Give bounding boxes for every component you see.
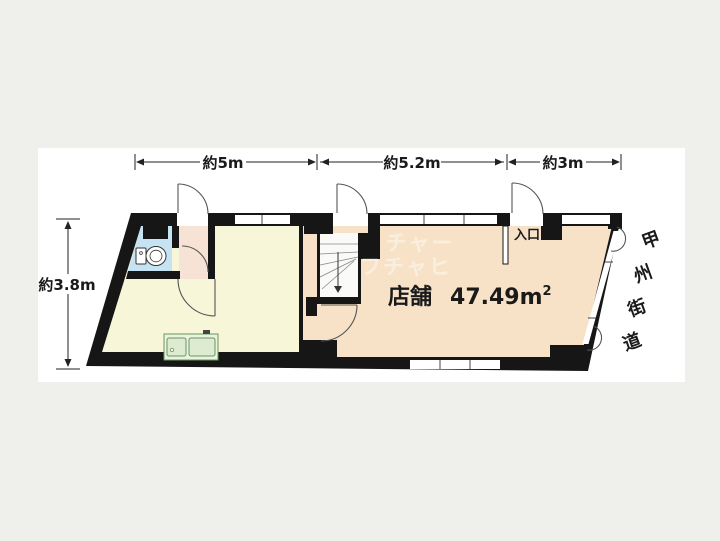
top-right-corner-block [608, 213, 622, 229]
bottom-window [410, 360, 500, 369]
shop-name: 店舗 [388, 284, 432, 310]
dim-label-5m: 約5m [202, 154, 243, 172]
pipe-shaft [143, 226, 168, 239]
stairs-bottom-left-block [306, 297, 317, 316]
top-window-2 [380, 215, 497, 224]
shop-label: 店舗47.49m2 [388, 284, 552, 310]
dim-label-3m: 約3m [542, 154, 583, 172]
dimension-left-label: 約3.8m [38, 274, 95, 294]
entrance-pillar [541, 226, 562, 240]
watermark-line2: フチャヒ [360, 255, 452, 279]
floorplan-svg: 約5m 約5.2m 約3m 約3.8m チャー フチャヒ 入口 店舗47.49m… [0, 0, 720, 541]
door-gap-vestibule [177, 213, 208, 226]
entrance-partition [503, 226, 508, 264]
door-gap-stairs [333, 213, 368, 226]
door-gap-entrance [510, 213, 543, 226]
kitchen-sink [164, 330, 218, 360]
top-window-1 [235, 215, 290, 224]
toilet-bottom-wall [126, 271, 180, 279]
vestibule-floor [179, 226, 208, 279]
vestibule-right-wall [208, 226, 215, 279]
top-window-3 [562, 215, 610, 224]
entrance-label: 入口 [514, 228, 540, 243]
stairs-top-pillar [304, 226, 333, 234]
shop-area-sup: 2 [543, 284, 552, 299]
floorplan-page: 約5m 約5.2m 約3m 約3.8m チャー フチャヒ 入口 店舗47.49m… [0, 0, 720, 541]
dim-label-3-8m: 約3.8m [38, 276, 95, 294]
toilet-icon [136, 247, 166, 266]
bottom-right-corner-block [550, 345, 586, 368]
dim-label-5-2m: 約5.2m [383, 154, 440, 172]
stairs-left-wall [317, 233, 320, 297]
shop-area: 47.49m [450, 285, 543, 310]
watermark-line1: チャー [386, 231, 455, 255]
stairs-bottom-wall [317, 297, 361, 304]
toilet-vestibule-wall [172, 226, 179, 248]
